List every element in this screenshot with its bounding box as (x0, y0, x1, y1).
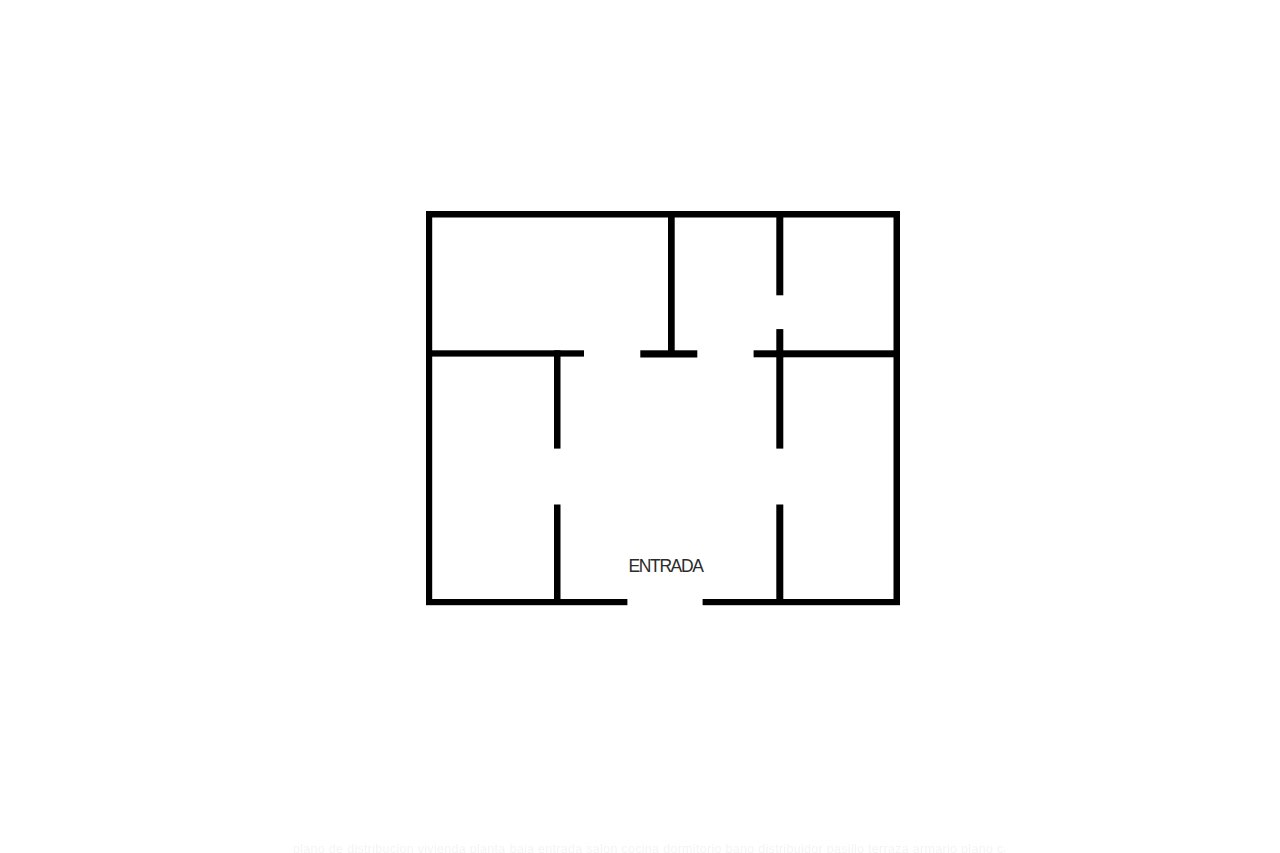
svg-text:ENTRADA: ENTRADA (629, 556, 705, 576)
